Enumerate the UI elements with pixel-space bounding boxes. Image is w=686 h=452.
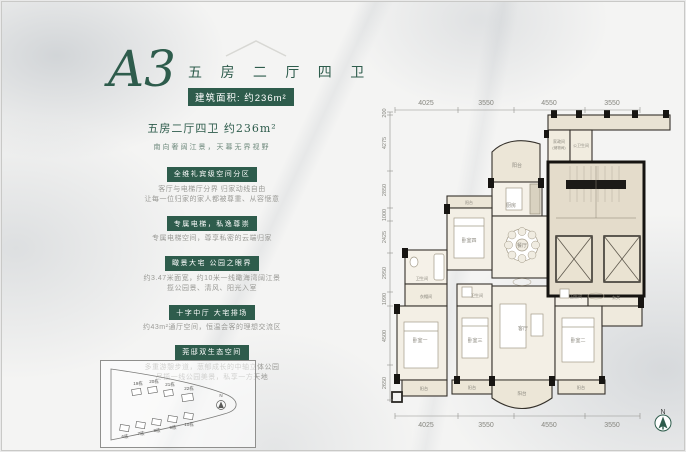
dimension-labels-left: 200 4275 2850 1000 2425 2950 1090 4500 2… [382,108,388,389]
svg-text:卫生间: 卫生间 [471,292,484,299]
feature-section: 十字中厅 大宅排场 约43m²通厅空间，恒温会客的理想交流区 [112,302,312,334]
svg-text:200: 200 [382,108,388,117]
svg-text:玄关: 玄关 [612,294,620,301]
dimension-labels-bottom: 4025 3550 4550 3550 [418,422,620,429]
feature-line: 让每一位归家的家人都被尊重、从容惬意 [112,195,312,205]
svg-text:1000: 1000 [382,209,388,221]
feature-line: 专属电梯空间，尊享私密的云端归家 [112,234,312,244]
svg-text:客厅: 客厅 [518,325,528,332]
intro-subline: 南向奢阔江景，天幕无界视野 [112,142,312,152]
svg-text:家政间: 家政间 [553,138,565,144]
feature-line: 约3.47米面宽，约10米一线瞰海湾阔江景 [112,274,312,284]
mini-north-icon: N [217,393,226,410]
feature-section: 瞰景大宅 公园之眼界 约3.47米面宽，约10米一线瞰海湾阔江景 揽公园景、清风… [112,252,312,294]
svg-text:卧室一: 卧室一 [412,337,427,344]
svg-text:卧室四: 卧室四 [461,237,476,244]
svg-text:阳台: 阳台 [465,199,473,205]
svg-text:4025: 4025 [418,100,434,107]
area-label: 建筑面积: 约236m² [188,88,294,106]
svg-text:7栋: 7栋 [137,430,145,437]
svg-text:阳台: 阳台 [518,390,527,397]
svg-text:阳台: 阳台 [420,385,428,392]
svg-text:卫生间: 卫生间 [416,275,429,282]
svg-text:公卫生间: 公卫生间 [573,142,589,148]
floor-plan-drawing: 阳台 厨房 餐厅 卧室四 客厅 卧室一 卧室三 卧室二 衣帽间 卫生间 卫生间 … [380,90,682,434]
svg-text:4550: 4550 [541,422,557,429]
svg-text:20栋: 20栋 [149,378,159,385]
floor-plan: 阳台 厨房 餐厅 卧室四 客厅 卧室一 卧室三 卧室二 衣帽间 卫生间 卫生间 … [380,90,682,434]
svg-text:(储物间): (储物间) [552,145,565,150]
description-column: 五房二厅四卫 约236m² 南向奢阔江景，天幕无界视野 全维礼宾级空间分区 客厅… [112,120,312,391]
brochure-page: A3 五 房 二 厅 四 卫 建筑面积: 约236m² 五房二厅四卫 约236m… [1,1,685,451]
shower2 [560,289,569,298]
svg-text:4500: 4500 [382,330,388,342]
feature-line: 约43m²通厅空间，恒温会客的理想交流区 [112,323,312,333]
svg-text:19栋: 19栋 [133,380,143,387]
feature-line: 客厅与电梯厅分界 归家动线自由 [112,185,312,195]
header-title-block: 五 房 二 厅 四 卫 建筑面积: 约236m² [188,62,371,106]
svg-text:2650: 2650 [382,377,388,389]
site-map: 19栋 20栋 21栋 22栋 6栋 7栋 8栋 9栋 10栋 [100,360,256,448]
svg-text:3550: 3550 [604,100,620,107]
feature-line: 揽公园景、清风、阳光入室 [112,284,312,294]
svg-text:9栋: 9栋 [169,424,177,431]
svg-text:卫生间: 卫生间 [570,293,583,300]
site-map-drawing: 19栋 20栋 21栋 22栋 6栋 7栋 8栋 9栋 10栋 [101,361,253,445]
feature-badge: 十字中厅 大宅排场 [169,305,254,320]
svg-text:4025: 4025 [418,422,434,429]
building-labels-top: 19栋 20栋 21栋 22栋 [133,378,194,392]
svg-text:8栋: 8栋 [153,427,161,434]
rug [513,279,531,286]
svg-text:6栋: 6栋 [121,433,129,440]
svg-text:4550: 4550 [541,100,557,107]
bed1 [404,322,438,368]
plan-code: A3 [108,44,176,94]
stair-core [548,162,644,296]
page-title: 五 房 二 厅 四 卫 [188,62,371,82]
svg-text:21栋: 21栋 [165,381,175,388]
intro-headline: 五房二厅四卫 约236m² [112,120,312,136]
svg-text:2850: 2850 [382,184,388,196]
svg-text:2425: 2425 [382,231,388,243]
svg-text:卧室二: 卧室二 [570,337,585,344]
svg-text:阳台: 阳台 [512,162,522,169]
svg-text:3550: 3550 [604,422,620,429]
svg-text:餐厅: 餐厅 [517,242,527,249]
svg-text:卧室三: 卧室三 [467,337,482,344]
corner-marker [392,392,402,402]
roof-icon [224,38,288,58]
svg-text:衣帽间: 衣帽间 [420,293,433,300]
svg-text:10栋: 10栋 [184,421,194,428]
svg-text:阳台: 阳台 [577,384,585,391]
svg-text:2950: 2950 [382,267,388,279]
svg-text:3550: 3550 [478,422,494,429]
feature-badge: 莞邸双生态空间 [175,345,249,360]
balcony-top [492,141,540,182]
feature-section: 全维礼宾级空间分区 客厅与电梯厅分界 归家动线自由 让每一位归家的家人都被尊重、… [112,163,312,205]
svg-text:3550: 3550 [478,100,494,107]
north-compass-icon: N [655,409,671,431]
feature-badge: 专属电梯，私逸尊崇 [167,216,258,231]
svg-text:N: N [219,393,222,398]
svg-text:1090: 1090 [382,293,388,305]
feature-badge: 瞰景大宅 公园之眼界 [165,256,259,271]
svg-text:4275: 4275 [382,137,388,149]
hall-under-core [602,306,642,326]
toilet [410,257,418,267]
svg-text:阳台: 阳台 [468,384,476,391]
coffee-table [531,314,543,336]
feature-section: 专属电梯，私逸尊崇 专属电梯空间，尊享私密的云端归家 [112,213,312,245]
svg-text:22栋: 22栋 [184,385,194,392]
kitchen-counter [530,184,540,214]
svg-text:厨房: 厨房 [506,202,516,209]
bathtub [434,254,444,280]
dimension-labels-top: 4025 3550 4550 3550 [418,100,620,107]
feature-badge: 全维礼宾级空间分区 [167,167,258,182]
